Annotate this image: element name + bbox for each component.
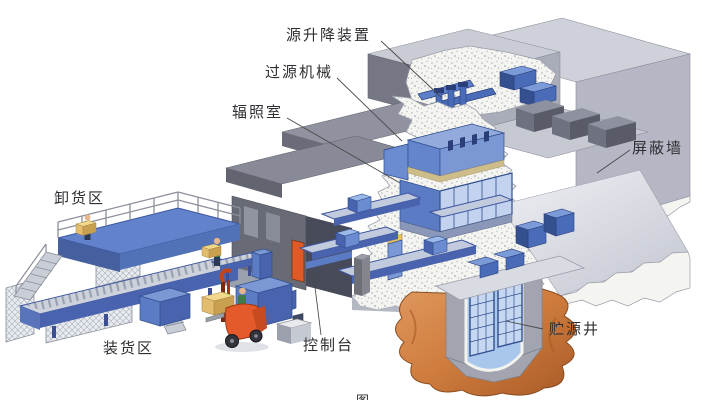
label-control-console: 控制台	[303, 337, 354, 354]
entrance-door	[292, 240, 304, 282]
facility-cutaway-figure: 源升降装置 过源机械 辐照室 屏蔽墙 卸货区 装货区 控制台 贮源井 图	[0, 0, 708, 400]
label-unloading-area: 卸货区	[54, 190, 105, 207]
stairs-left	[14, 244, 62, 300]
label-storage-well: 贮源井	[549, 321, 600, 338]
label-shielding-wall: 屏蔽墙	[632, 140, 683, 157]
label-loading-area: 装货区	[103, 340, 154, 357]
caption-fragment: 图	[356, 390, 369, 400]
label-source-transfer: 过源机械	[265, 64, 333, 81]
label-irradiation-room: 辐照室	[232, 104, 283, 121]
label-source-hoist: 源升降装置	[286, 27, 371, 44]
